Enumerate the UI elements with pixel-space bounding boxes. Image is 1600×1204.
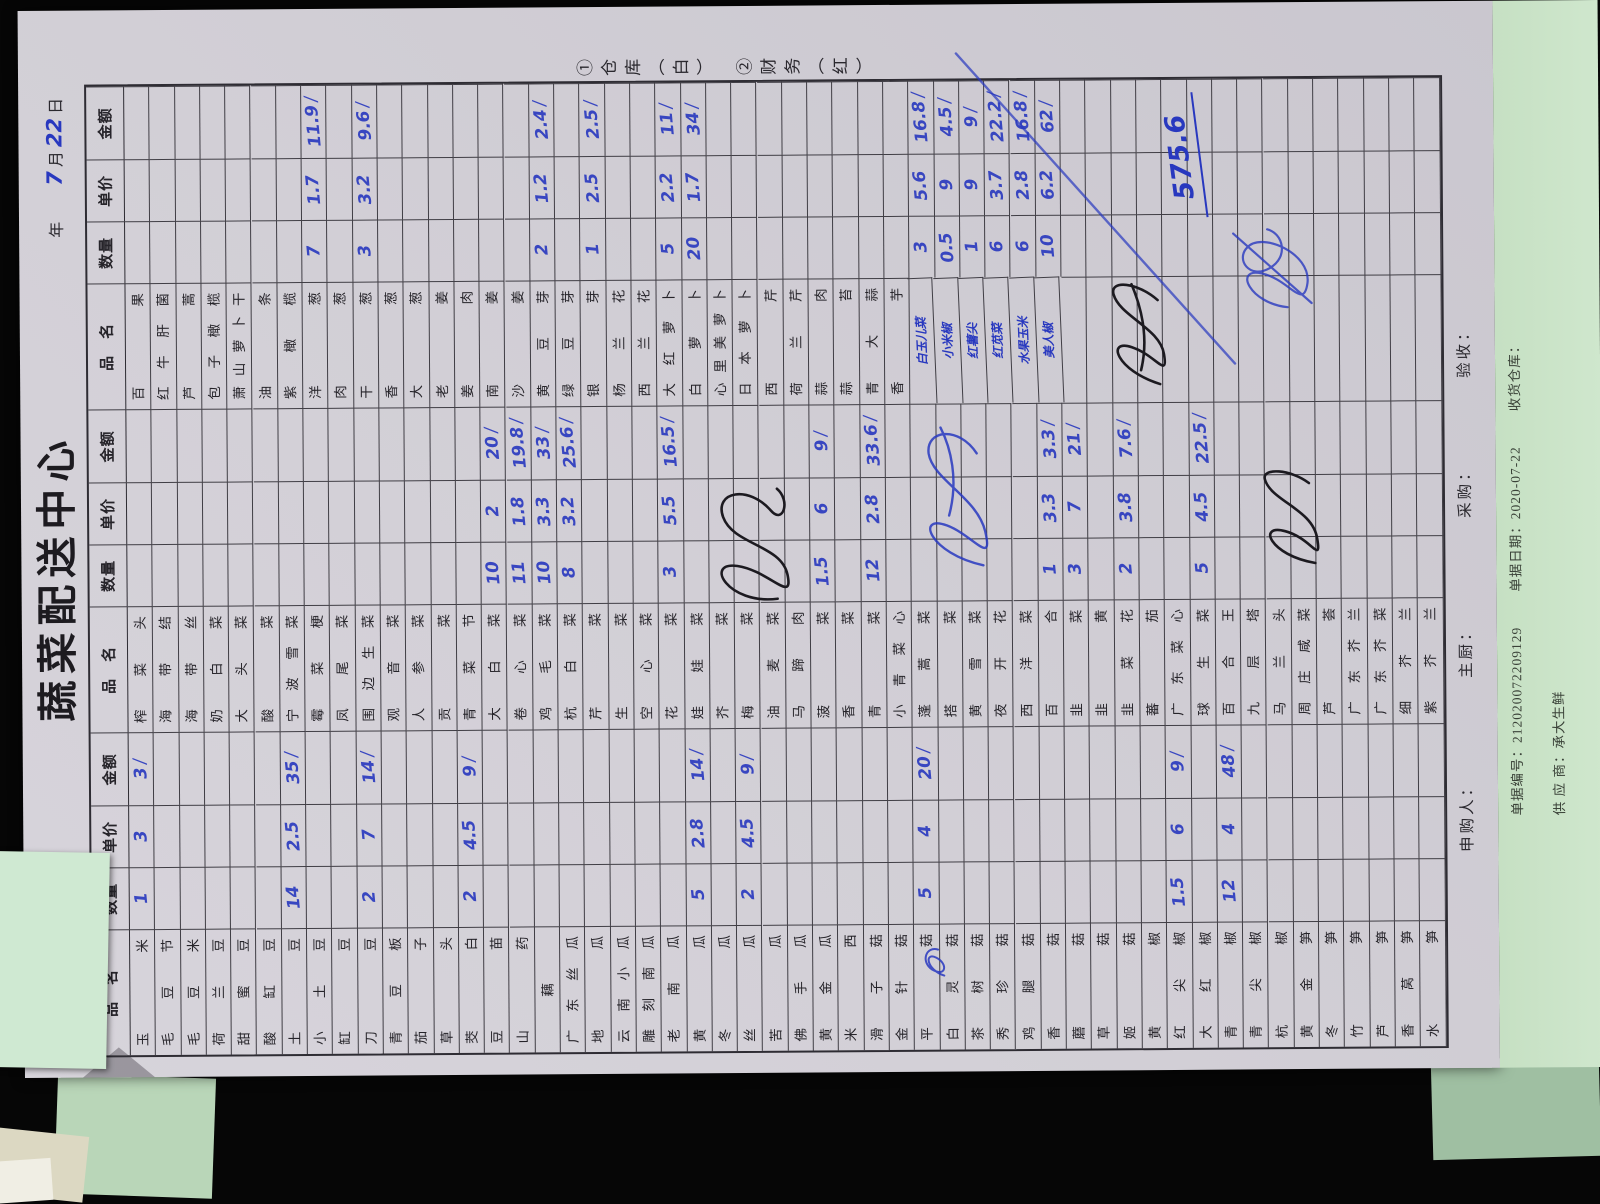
product-name-cell: 土豆 bbox=[282, 928, 308, 1054]
quantity-cell bbox=[1066, 861, 1092, 923]
quantity-cell bbox=[178, 544, 204, 606]
amount-cell: 16.8/ bbox=[1010, 80, 1036, 153]
quantity-cell bbox=[836, 539, 862, 601]
check-tick-icon: / bbox=[658, 416, 678, 424]
unit-price-cell bbox=[787, 800, 813, 862]
unit-price-value: 7 bbox=[359, 828, 380, 842]
amount-cell bbox=[432, 730, 458, 803]
unit-price-cell: 3.2 bbox=[352, 158, 378, 220]
quantity-cell bbox=[808, 216, 834, 278]
unit-price-value: 1.7 bbox=[682, 171, 705, 203]
quantity-value: 1 bbox=[1040, 562, 1061, 576]
quantity-cell bbox=[1395, 858, 1421, 920]
product-name-cell: 黄雪菜 bbox=[963, 600, 989, 726]
unit-price-cell bbox=[1141, 798, 1167, 860]
quantity-cell bbox=[429, 219, 455, 281]
amount-cell bbox=[225, 85, 251, 158]
amount-cell bbox=[1014, 726, 1040, 799]
amount-cell bbox=[149, 86, 175, 159]
amount-cell bbox=[1115, 725, 1141, 798]
check-tick-icon: / bbox=[960, 106, 980, 114]
product-name-cell: 马蹄肉 bbox=[785, 602, 811, 728]
unit-price-cell: 1.8 bbox=[506, 479, 532, 541]
unit-price-value: 5.5 bbox=[659, 494, 682, 526]
amount-value: 2.5/ bbox=[580, 100, 604, 141]
product-name-cell: 围边生菜 bbox=[355, 605, 381, 731]
unit-price-cell bbox=[1263, 151, 1289, 213]
amount-cell bbox=[251, 85, 277, 158]
quantity-cell bbox=[1238, 213, 1264, 275]
check-tick-icon: / bbox=[737, 754, 757, 762]
amount-cell bbox=[1292, 724, 1318, 797]
product-name-cell: 荷兰芹 bbox=[783, 279, 809, 405]
unit-price-cell bbox=[1164, 475, 1190, 537]
product-name-cell: 包子橄榄 bbox=[201, 283, 227, 409]
product-name-cell: 花菜 bbox=[659, 602, 685, 728]
check-tick-icon: / bbox=[352, 101, 372, 109]
unit-price-cell bbox=[1111, 152, 1137, 214]
product-name-cell: 韭菜 bbox=[1064, 600, 1090, 726]
unit-price-cell bbox=[812, 800, 838, 862]
quantity-cell bbox=[636, 864, 662, 926]
amount-cell bbox=[504, 83, 530, 156]
quantity-cell bbox=[431, 542, 457, 604]
unit-price-cell bbox=[1238, 151, 1264, 213]
product-name-cell: 酸缸豆 bbox=[256, 928, 282, 1054]
product-name-cell: 佛手瓜 bbox=[788, 924, 814, 1050]
quantity-cell bbox=[153, 544, 179, 606]
amount-cell bbox=[1242, 724, 1268, 797]
product-name-cell: 雕刻南瓜 bbox=[636, 926, 662, 1052]
product-name-cell: 苦瓜 bbox=[762, 925, 788, 1051]
amount-cell bbox=[1394, 723, 1420, 796]
unit-price-cell bbox=[226, 158, 252, 220]
unit-price-value: 2.8 bbox=[862, 493, 885, 525]
amount-cell bbox=[228, 408, 254, 481]
unit-price-value: 4 bbox=[915, 824, 936, 838]
unit-price-cell bbox=[1242, 797, 1268, 859]
product-name-cell: 霉菜梗 bbox=[305, 605, 331, 731]
amount-value: 9/ bbox=[737, 754, 759, 776]
product-name-cell: 青豆板 bbox=[383, 927, 409, 1053]
unit-price-cell bbox=[228, 481, 254, 543]
amount-cell: 33/ bbox=[531, 406, 557, 479]
amount-cell bbox=[230, 731, 256, 804]
amount-cell bbox=[1065, 726, 1091, 799]
unit-price-cell bbox=[1339, 151, 1365, 213]
product-name-cell: 洋葱 bbox=[303, 282, 329, 408]
product-name-cell: 白灵菇 bbox=[940, 923, 966, 1049]
amount-cell: 9/ bbox=[1166, 725, 1192, 798]
product-name-cell: 娃娃菜 bbox=[684, 602, 710, 728]
quantity-cell bbox=[886, 539, 912, 601]
quantity-cell bbox=[378, 219, 404, 281]
amount-value: 14/ bbox=[686, 748, 709, 782]
unit-price-value: 5.6 bbox=[910, 169, 933, 201]
amount-cell: 34/ bbox=[681, 82, 707, 155]
quantity-cell bbox=[226, 220, 252, 282]
unit-price-value: 2 bbox=[483, 504, 504, 518]
amount-cell: 2.5/ bbox=[579, 83, 605, 156]
product-name-cell: 红牛肝菌 bbox=[151, 283, 177, 409]
quantity-cell bbox=[1243, 859, 1269, 921]
product-name-cell bbox=[1062, 277, 1088, 403]
product-name-cell bbox=[1340, 275, 1366, 401]
amount-cell bbox=[759, 405, 785, 478]
unit-price-cell bbox=[1012, 476, 1038, 538]
column-header: 数量 bbox=[89, 544, 127, 606]
unit-price-cell: 2.5 bbox=[281, 804, 307, 866]
product-name-cell: 油条 bbox=[252, 282, 278, 408]
product-name-cell: 水笋 bbox=[1420, 920, 1446, 1046]
quantity-cell: 5 bbox=[1190, 537, 1216, 599]
amount-cell: 9/ bbox=[959, 80, 985, 153]
check-tick-icon: / bbox=[301, 96, 321, 104]
unit-price-cell: 3.7 bbox=[985, 153, 1011, 215]
unit-price-cell bbox=[962, 476, 988, 538]
unit-price-cell bbox=[785, 478, 811, 540]
amount-cell bbox=[812, 727, 838, 800]
day-label: 日 bbox=[48, 98, 65, 114]
product-name-cell: 贡菜 bbox=[431, 604, 457, 730]
amount-cell: 16.8/ bbox=[908, 81, 934, 154]
quantity-cell bbox=[1339, 213, 1365, 275]
amount-cell bbox=[961, 403, 987, 476]
unit-price-cell bbox=[175, 159, 201, 221]
year-label: 年 bbox=[49, 222, 66, 238]
quantity-cell bbox=[155, 867, 181, 929]
amount-value: 25.6/ bbox=[556, 417, 581, 469]
quantity-cell: 12 bbox=[1217, 859, 1243, 921]
product-name-cell: 广东芥兰 bbox=[1342, 598, 1368, 724]
unit-price-cell bbox=[1065, 799, 1091, 861]
product-name-cell: 西洋菜 bbox=[1013, 600, 1039, 726]
amount-cell bbox=[936, 403, 962, 476]
amount-cell bbox=[1088, 402, 1114, 475]
unit-price-value: 1.7 bbox=[303, 174, 326, 206]
product-name-cell: 韭菜花 bbox=[1114, 599, 1140, 725]
amount-cell bbox=[708, 405, 734, 478]
quantity-cell: 11 bbox=[507, 541, 533, 603]
quantity-value: 1.5 bbox=[1168, 876, 1191, 908]
quantity-cell: 0.5 bbox=[935, 215, 961, 277]
amount-cell bbox=[1389, 77, 1415, 150]
quantity-cell bbox=[1319, 859, 1345, 921]
amount-cell bbox=[1318, 724, 1344, 797]
quantity-cell bbox=[707, 217, 733, 279]
quantity-cell: 20 bbox=[682, 217, 708, 279]
unit-price-cell: 6 bbox=[1166, 798, 1192, 860]
quantity-value: 8 bbox=[559, 566, 580, 580]
quantity-cell bbox=[631, 218, 657, 280]
product-name-cell: 搭菜 bbox=[937, 600, 963, 726]
unit-price-cell bbox=[734, 478, 760, 540]
product-name-cell: 西兰花 bbox=[631, 280, 657, 406]
quantity-cell: 1.5 bbox=[1167, 860, 1193, 922]
quantity-value: 12 bbox=[862, 558, 884, 583]
quantity-cell bbox=[1369, 858, 1395, 920]
product-name-cell: 心里美萝卜 bbox=[707, 279, 733, 405]
product-name-cell: 蓬蒿菜 bbox=[912, 601, 938, 727]
check-tick-icon: / bbox=[811, 430, 831, 438]
quantity-cell bbox=[406, 542, 432, 604]
unit-price-cell bbox=[1088, 475, 1114, 537]
amount-cell bbox=[354, 408, 380, 481]
product-name-cell: 大白菜 bbox=[482, 604, 508, 730]
amount-cell bbox=[963, 726, 989, 799]
quantity-cell: 1 bbox=[1038, 538, 1064, 600]
unit-price-cell: 2.2 bbox=[656, 155, 682, 217]
unit-price-cell bbox=[1212, 152, 1238, 214]
product-name-cell bbox=[1112, 276, 1138, 402]
unit-price-cell bbox=[127, 482, 153, 544]
unit-price-cell bbox=[884, 154, 910, 216]
check-tick-icon: / bbox=[281, 751, 301, 759]
quantity-cell bbox=[203, 544, 229, 606]
check-tick-icon: / bbox=[580, 100, 600, 108]
column-header: 数量 bbox=[87, 221, 125, 283]
unit-price-cell bbox=[1137, 152, 1163, 214]
quantity-cell bbox=[990, 861, 1016, 923]
unit-price-cell bbox=[633, 479, 659, 541]
product-name-cell: 海带结 bbox=[153, 606, 179, 732]
quantity-cell bbox=[585, 864, 611, 926]
unit-price-cell bbox=[1392, 473, 1418, 535]
amount-cell bbox=[1214, 402, 1240, 475]
quantity-value: 5 bbox=[916, 886, 937, 900]
quantity-value: 2 bbox=[1116, 562, 1137, 576]
unit-price-cell bbox=[433, 803, 459, 865]
quantity-cell bbox=[709, 540, 735, 602]
unit-price-cell bbox=[782, 155, 808, 217]
product-name-cell: 姜肉 bbox=[454, 281, 480, 407]
unit-price-cell bbox=[1394, 796, 1420, 858]
unit-price-cell bbox=[709, 478, 735, 540]
product-name-cell: 榨菜头 bbox=[128, 606, 154, 732]
quantity-cell: 2 bbox=[1114, 537, 1140, 599]
product-name-cell: 竹笋 bbox=[1344, 921, 1370, 1047]
amount-cell bbox=[885, 404, 911, 477]
product-name-cell: 大红椒 bbox=[1193, 922, 1219, 1048]
product-name-cell: 姬菇 bbox=[1117, 922, 1143, 1048]
product-name-cell: 丝瓜 bbox=[737, 925, 763, 1051]
product-name-cell: 冬笋 bbox=[1319, 921, 1345, 1047]
quantity-cell bbox=[838, 862, 864, 924]
unit-price-cell: 4 bbox=[913, 800, 939, 862]
unit-price-cell bbox=[888, 800, 914, 862]
quantity-cell: 5 bbox=[656, 217, 682, 279]
product-name-cell: 平菇 bbox=[914, 924, 940, 1050]
product-name-cell bbox=[1390, 274, 1416, 400]
unit-price-cell bbox=[1364, 150, 1390, 212]
product-name-cell bbox=[1264, 275, 1290, 401]
product-name-cell: 青椒 bbox=[1218, 921, 1244, 1047]
unit-price-cell bbox=[483, 803, 509, 865]
product-name-cell: 山药 bbox=[509, 926, 535, 1052]
quantity-cell bbox=[987, 538, 1013, 600]
amount-cell: 11/ bbox=[655, 82, 681, 155]
quantity-value: 12 bbox=[1219, 878, 1241, 903]
amount-cell bbox=[807, 81, 833, 154]
quantity-cell bbox=[758, 217, 784, 279]
unit-price-cell bbox=[1314, 151, 1340, 213]
unit-price-cell: 3 bbox=[129, 805, 155, 867]
product-name-cell: 韭黄 bbox=[1089, 599, 1115, 725]
quantity-cell bbox=[1314, 213, 1340, 275]
check-tick-icon: / bbox=[357, 751, 377, 759]
product-name-cell: 卷心菜 bbox=[507, 603, 533, 729]
amount-value: 35/ bbox=[281, 751, 304, 785]
unit-price-cell bbox=[403, 157, 429, 219]
product-name-cell: 缸豆 bbox=[332, 928, 358, 1054]
unit-price-value: 3.2 bbox=[353, 173, 376, 205]
unit-price-cell: 9 bbox=[959, 153, 985, 215]
unit-price-cell: 2.8 bbox=[861, 477, 887, 539]
product-name-cell: 蒜肉 bbox=[809, 278, 835, 404]
column-header: 金额 bbox=[86, 86, 125, 159]
quantity-cell bbox=[889, 862, 915, 924]
quantity-cell bbox=[180, 867, 206, 929]
unit-price-cell: 1.2 bbox=[529, 156, 555, 218]
amount-value: 7.6/ bbox=[1114, 419, 1138, 460]
amount-value: 16.5/ bbox=[658, 416, 683, 468]
unit-price-value: 3 bbox=[131, 830, 152, 844]
product-name-cell: 菠菜 bbox=[811, 601, 837, 727]
check-tick-icon: / bbox=[459, 756, 479, 764]
amount-cell bbox=[1060, 80, 1086, 153]
quantity-cell: 1 bbox=[130, 867, 156, 929]
amount-cell: 48/ bbox=[1216, 724, 1242, 797]
amount-cell: 33.6/ bbox=[860, 404, 886, 477]
sticky-note bbox=[0, 851, 110, 1069]
unit-price-cell bbox=[1390, 150, 1416, 212]
amount-cell bbox=[1136, 79, 1162, 152]
amount-cell bbox=[757, 82, 783, 155]
product-name-cell: 草菇 bbox=[1091, 922, 1117, 1048]
amount-cell bbox=[1265, 401, 1291, 474]
amount-cell: 62/ bbox=[1035, 80, 1061, 153]
amount-cell bbox=[276, 85, 302, 158]
product-name-cell: 小土豆 bbox=[307, 928, 333, 1054]
unit-price-value: 9 bbox=[961, 178, 982, 192]
quantity-cell bbox=[1344, 859, 1370, 921]
product-name-cell: 甜蜜豆 bbox=[231, 928, 257, 1054]
amount-cell bbox=[1313, 78, 1339, 151]
product-name-cell: 香芋 bbox=[884, 278, 910, 404]
quantity-cell bbox=[785, 540, 811, 602]
quantity-value: 1 bbox=[582, 243, 603, 257]
amount-value: 33/ bbox=[532, 426, 555, 460]
unit-price-cell bbox=[863, 800, 889, 862]
amount-cell bbox=[683, 405, 709, 478]
amount-cell bbox=[607, 406, 633, 479]
order-table: 品 名数量单价金额玉米133/毛豆节毛豆米荷兰豆甜蜜豆酸缸豆土豆142.535/… bbox=[84, 75, 1449, 1057]
quantity-cell: 10 bbox=[532, 541, 558, 603]
product-name-cell bbox=[1137, 276, 1163, 402]
quantity-cell bbox=[479, 219, 505, 281]
quantity-cell: 1 bbox=[580, 218, 606, 280]
quantity-cell bbox=[1291, 536, 1317, 598]
product-name-cell: 黄金瓜 bbox=[813, 924, 839, 1050]
check-tick-icon: / bbox=[656, 102, 676, 110]
quantity-cell: 1 bbox=[960, 215, 986, 277]
unit-price-cell bbox=[1341, 474, 1367, 536]
quantity-cell bbox=[1365, 212, 1391, 274]
product-name-cell: 香菇 bbox=[1041, 923, 1067, 1049]
unit-price-cell: 6.2 bbox=[1035, 153, 1061, 215]
column-group-1: 品 名数量单价金额玉米133/毛豆节毛豆米荷兰豆甜蜜豆酸缸豆土豆142.535/… bbox=[91, 723, 1447, 1055]
unit-price-cell: 4.5 bbox=[458, 803, 484, 865]
check-tick-icon: / bbox=[130, 758, 150, 766]
product-name-cell: 青尖椒 bbox=[1243, 921, 1269, 1047]
column-header: 单价 bbox=[87, 159, 125, 221]
product-name-cell: 玉米 bbox=[130, 929, 156, 1055]
quantity-value: 10 bbox=[533, 560, 555, 585]
quantity-value: 0.5 bbox=[936, 231, 959, 263]
amount-cell bbox=[1090, 725, 1116, 798]
amount-cell bbox=[202, 409, 228, 482]
amount-cell bbox=[1164, 402, 1190, 475]
form-title: 蔬菜配送中心 bbox=[23, 434, 85, 722]
column-group-2: 品 名数量单价金额榨菜头海带结海带丝奶白菜大头菜酸菜宁波雪菜霉菜梗凤尾菜围边生菜… bbox=[88, 400, 1444, 732]
amount-cell bbox=[784, 405, 810, 478]
amount-cell bbox=[660, 728, 686, 801]
unit-price-cell bbox=[430, 480, 456, 542]
product-name-cell: 金针菇 bbox=[889, 924, 915, 1050]
quantity-cell bbox=[1015, 861, 1041, 923]
quantity-value: 3 bbox=[1065, 562, 1086, 576]
unit-price-cell bbox=[605, 156, 631, 218]
quantity-cell bbox=[256, 866, 282, 928]
quantity-cell bbox=[150, 221, 176, 283]
quantity-cell bbox=[509, 864, 535, 926]
amount-cell bbox=[1191, 725, 1217, 798]
unit-price-cell bbox=[964, 799, 990, 861]
product-name-cell: 云南小瓜 bbox=[611, 926, 637, 1052]
quantity-cell bbox=[327, 220, 353, 282]
quantity-cell bbox=[583, 541, 609, 603]
unit-price-cell bbox=[631, 156, 657, 218]
product-name-cell bbox=[1087, 276, 1113, 402]
unit-price-cell bbox=[1288, 151, 1314, 213]
amount-cell: 21/ bbox=[1062, 403, 1088, 476]
amount-cell bbox=[989, 726, 1015, 799]
amount-cell bbox=[1364, 77, 1390, 150]
amount-cell bbox=[303, 408, 329, 481]
amount-cell bbox=[1237, 78, 1263, 151]
check-tick-icon: / bbox=[984, 91, 1004, 99]
product-name-cell: 肉葱 bbox=[328, 282, 354, 408]
quantity-value: 11 bbox=[508, 560, 530, 585]
amount-cell: 2.4/ bbox=[529, 83, 555, 156]
under-sheet-fragment-bottom-right bbox=[1431, 1056, 1600, 1160]
amount-cell bbox=[883, 81, 909, 154]
check-tick-icon: / bbox=[1036, 100, 1056, 108]
check-tick-icon: / bbox=[1189, 413, 1209, 421]
product-name-cell: 凤尾菜 bbox=[330, 605, 356, 731]
amount-cell bbox=[126, 409, 152, 482]
unit-price-cell: 3.8 bbox=[1114, 475, 1140, 537]
amount-cell bbox=[1414, 77, 1440, 150]
quantity-value: 2 bbox=[460, 890, 481, 904]
check-tick-icon: / bbox=[1038, 420, 1058, 428]
unit-price-cell: 5.5 bbox=[658, 478, 684, 540]
quantity-cell: 3 bbox=[1063, 538, 1089, 600]
unit-price-cell bbox=[504, 156, 530, 218]
amount-value: 16.8/ bbox=[908, 92, 933, 144]
unit-price-cell bbox=[608, 479, 634, 541]
unit-price-cell bbox=[683, 478, 709, 540]
